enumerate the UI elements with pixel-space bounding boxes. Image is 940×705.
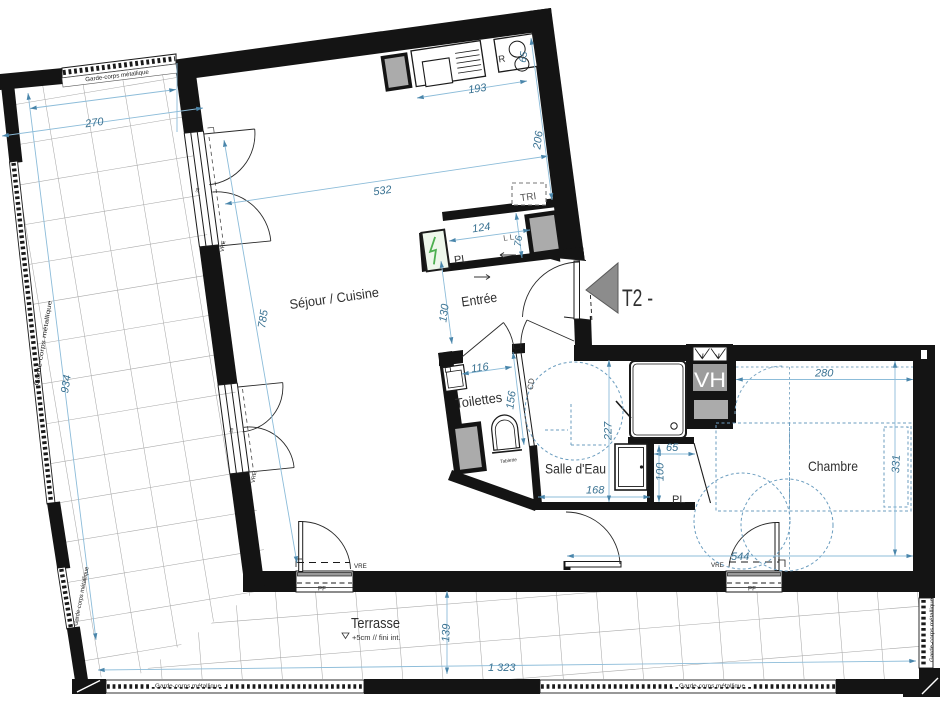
svg-text:227: 227 [603,421,615,441]
svg-text:TRI: TRI [520,191,537,204]
svg-text:VH: VH [694,369,726,392]
svg-text:544: 544 [731,551,749,563]
svg-text:100: 100 [655,462,667,481]
svg-text:124: 124 [471,221,491,235]
svg-text:Chambre: Chambre [808,458,858,474]
svg-text:Terrasse: Terrasse [351,616,400,632]
svg-text:+5cm // fini int.: +5cm // fini int. [352,633,401,642]
svg-text:PF: PF [748,586,756,593]
svg-text:PL: PL [453,253,468,267]
svg-text:331: 331 [890,455,903,474]
svg-text:116: 116 [470,361,490,375]
svg-text:65: 65 [666,442,679,454]
svg-text:Garde-corps métallique: Garde-corps métallique [679,684,745,690]
svg-text:168: 168 [586,485,605,497]
svg-text:Salle d'Eau: Salle d'Eau [545,462,606,477]
svg-text:CD: CD [526,378,536,391]
svg-text:76: 76 [513,234,526,247]
svg-text:1 323: 1 323 [488,662,516,674]
svg-text:T2 -: T2 - [622,285,653,312]
svg-text:PL: PL [672,494,685,506]
svg-text:65: 65 [518,50,531,63]
svg-text:280: 280 [814,368,834,380]
svg-text:139: 139 [440,624,453,643]
svg-text:Garde-corps métallique: Garde-corps métallique [930,598,936,662]
svg-text:Garde-corps métallique: Garde-corps métallique [155,684,221,690]
svg-text:VRE: VRE [354,563,367,570]
svg-text:L L: L L [503,232,516,242]
svg-text:PF: PF [318,586,326,593]
svg-text:VRE: VRE [711,562,724,569]
